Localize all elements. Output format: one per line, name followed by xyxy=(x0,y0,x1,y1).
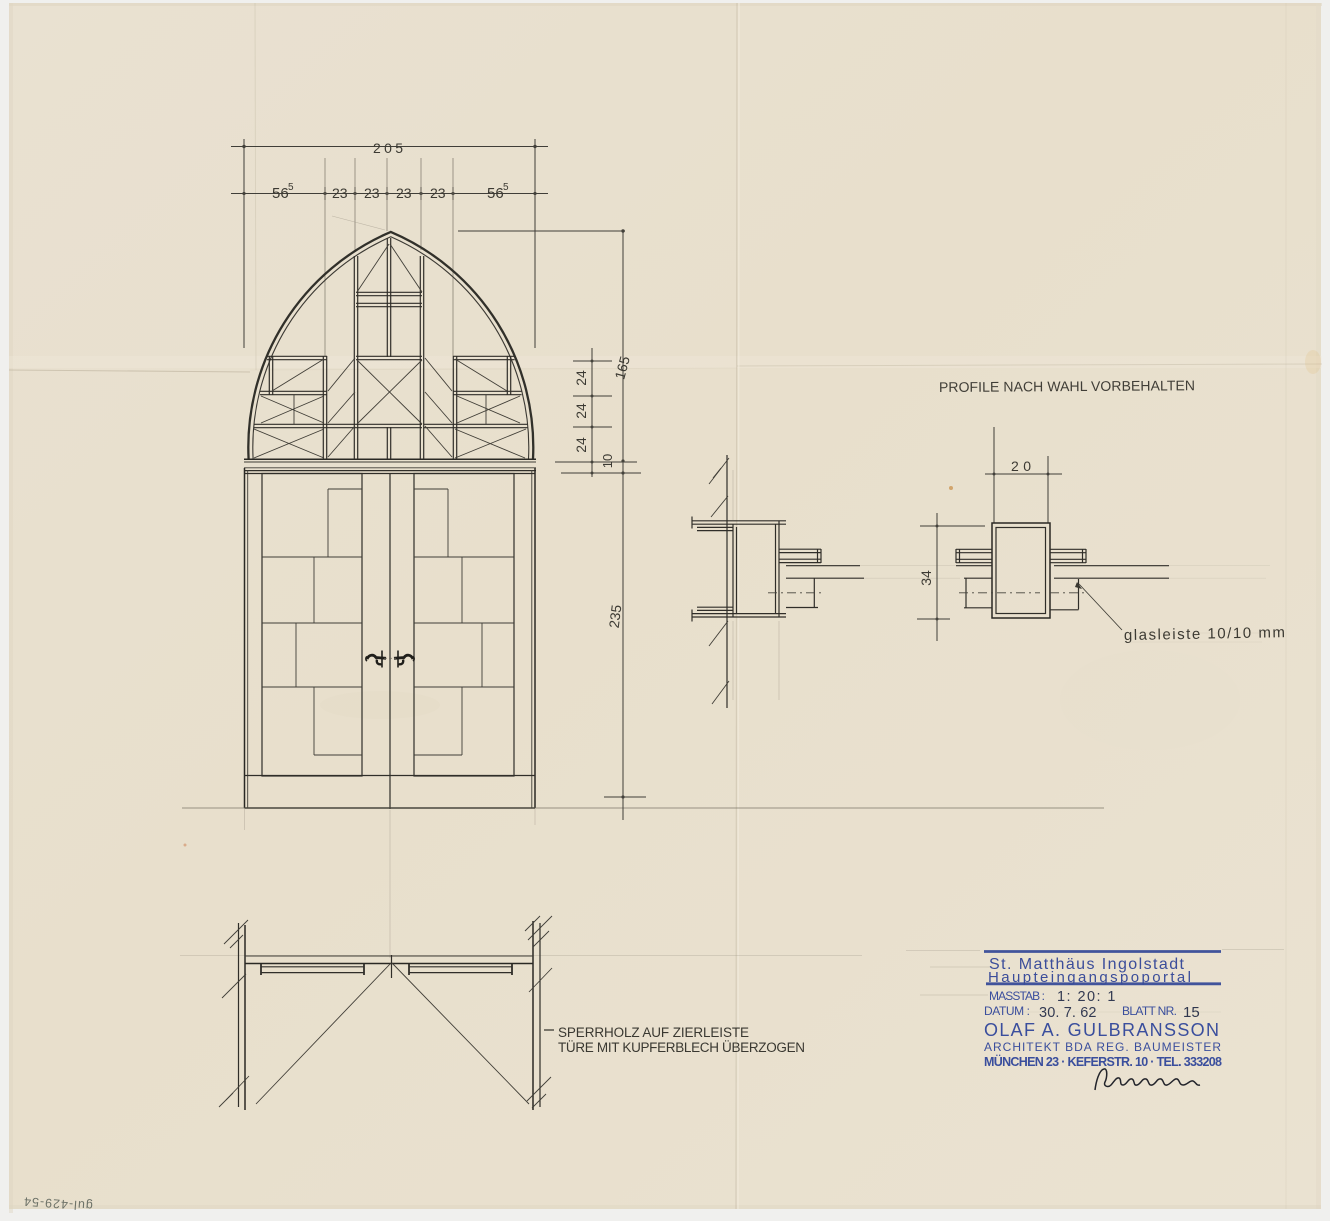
svg-text:23: 23 xyxy=(364,185,380,201)
svg-text:34: 34 xyxy=(918,570,934,586)
svg-text:TÜRE MIT KUPFERBLECH ÜBERZOGEN: TÜRE MIT KUPFERBLECH ÜBERZOGEN xyxy=(558,1040,806,1055)
svg-text:235: 235 xyxy=(606,604,625,629)
svg-text:24: 24 xyxy=(573,437,589,453)
svg-text:DATUM :: DATUM : xyxy=(984,1004,1032,1018)
svg-text:1: 20: 1: 1: 20: 1 xyxy=(1057,989,1117,1005)
svg-text:24: 24 xyxy=(573,403,589,419)
svg-text:ARCHITEKT BDA REG. BAUMEISTER: ARCHITEKT BDA REG. BAUMEISTER xyxy=(984,1040,1221,1054)
svg-text:SPERRHOLZ AUF ZIERLEISTE: SPERRHOLZ AUF ZIERLEISTE xyxy=(558,1025,750,1040)
svg-text:OLAF A. GULBRANSSON: OLAF A. GULBRANSSON xyxy=(984,1020,1219,1040)
svg-text:PROFILE NACH WAHL VORBEHALTEN: PROFILE NACH WAHL VORBEHALTEN xyxy=(939,377,1197,395)
svg-text:24: 24 xyxy=(573,370,589,386)
svg-text:23: 23 xyxy=(430,185,446,201)
svg-text:23: 23 xyxy=(332,185,348,201)
svg-text:BLATT NR.: BLATT NR. xyxy=(1122,1004,1178,1018)
svg-text:30. 7. 62: 30. 7. 62 xyxy=(1039,1005,1098,1021)
svg-text:glasleiste 10/10 mm: glasleiste 10/10 mm xyxy=(1124,624,1286,644)
svg-text:10: 10 xyxy=(600,454,615,468)
svg-text:5: 5 xyxy=(503,182,509,193)
svg-text:MÜNCHEN 23 · KEFERSTR. 10 · TE: MÜNCHEN 23 · KEFERSTR. 10 · TEL. 333208 xyxy=(984,1054,1222,1069)
svg-text:205: 205 xyxy=(373,140,403,156)
svg-text:15: 15 xyxy=(1183,1004,1200,1021)
svg-text:23: 23 xyxy=(396,185,412,201)
svg-text:56: 56 xyxy=(487,185,504,202)
svg-text:56: 56 xyxy=(272,185,289,202)
svg-text:5: 5 xyxy=(288,182,294,193)
svg-text:MASSTAB :: MASSTAB : xyxy=(989,989,1047,1003)
